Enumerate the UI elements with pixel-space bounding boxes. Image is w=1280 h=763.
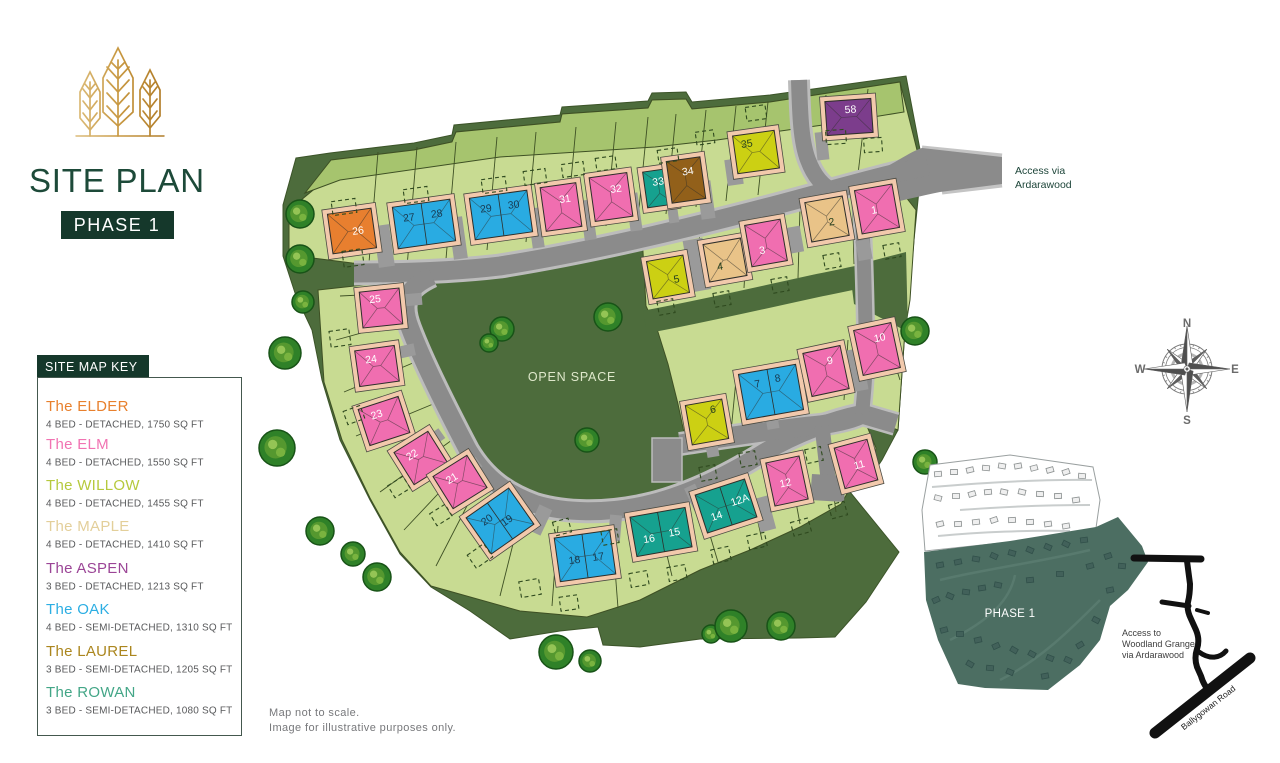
svg-text:58: 58	[844, 103, 857, 116]
svg-text:4 BED - DETACHED, 1550 SQ FT: 4 BED - DETACHED, 1550 SQ FT	[46, 458, 204, 469]
svg-text:3 BED - SEMI-DETACHED, 1080 SQ: 3 BED - SEMI-DETACHED, 1080 SQ FT	[46, 706, 232, 717]
svg-text:Map not to scale.: Map not to scale.	[269, 707, 360, 719]
svg-text:Ardarawood: Ardarawood	[1015, 179, 1072, 191]
svg-text:4 BED - SEMI-DETACHED, 1310 SQ: 4 BED - SEMI-DETACHED, 1310 SQ FT	[46, 623, 232, 634]
svg-text:35: 35	[740, 137, 753, 151]
svg-text:32: 32	[609, 182, 622, 196]
svg-text:The ASPEN: The ASPEN	[46, 560, 129, 577]
svg-text:29: 29	[479, 202, 492, 216]
svg-text:25: 25	[369, 293, 382, 306]
svg-text:The ELM: The ELM	[46, 436, 109, 453]
svg-text:S: S	[1183, 415, 1191, 427]
svg-text:PHASE 1: PHASE 1	[985, 608, 1036, 620]
svg-text:4 BED - DETACHED, 1455 SQ FT: 4 BED - DETACHED, 1455 SQ FT	[46, 499, 204, 510]
svg-text:27: 27	[402, 211, 415, 225]
svg-text:17: 17	[592, 550, 605, 564]
svg-text:The LAUREL: The LAUREL	[46, 643, 137, 660]
svg-text:Access to: Access to	[1122, 628, 1161, 638]
svg-text:30: 30	[507, 198, 520, 212]
svg-text:Woodland Grange: Woodland Grange	[1122, 639, 1195, 649]
svg-text:N: N	[1183, 318, 1191, 330]
svg-text:The OAK: The OAK	[46, 601, 110, 618]
svg-text:SITE PLAN: SITE PLAN	[29, 162, 205, 199]
svg-text:PHASE 1: PHASE 1	[74, 215, 161, 235]
svg-text:33: 33	[652, 175, 665, 189]
svg-text:34: 34	[681, 165, 694, 179]
svg-text:4 BED - DETACHED, 1750 SQ FT: 4 BED - DETACHED, 1750 SQ FT	[46, 420, 204, 431]
svg-text:SITE MAP KEY: SITE MAP KEY	[45, 360, 138, 374]
svg-text:4 BED - DETACHED, 1410 SQ FT: 4 BED - DETACHED, 1410 SQ FT	[46, 540, 204, 551]
svg-text:28: 28	[430, 207, 443, 221]
svg-text:The WILLOW: The WILLOW	[46, 477, 140, 494]
svg-text:E: E	[1231, 364, 1239, 376]
svg-text:The MAPLE: The MAPLE	[46, 518, 130, 535]
svg-text:24: 24	[364, 353, 377, 367]
svg-text:Access via: Access via	[1015, 165, 1065, 177]
svg-text:The ELDER: The ELDER	[46, 398, 129, 415]
svg-text:26: 26	[351, 224, 364, 238]
svg-text:18: 18	[568, 554, 581, 568]
svg-text:3 BED - SEMI-DETACHED, 1205 SQ: 3 BED - SEMI-DETACHED, 1205 SQ FT	[46, 665, 232, 676]
svg-text:16: 16	[642, 532, 656, 546]
svg-text:OPEN SPACE: OPEN SPACE	[528, 370, 616, 384]
svg-text:31: 31	[558, 193, 571, 207]
svg-text:15: 15	[668, 526, 682, 540]
svg-text:via Ardarawood: via Ardarawood	[1122, 650, 1184, 660]
svg-text:Image for illustrative purpose: Image for illustrative purposes only.	[269, 722, 456, 734]
svg-text:W: W	[1135, 364, 1146, 376]
svg-text:3 BED - DETACHED, 1213 SQ FT: 3 BED - DETACHED, 1213 SQ FT	[46, 582, 204, 593]
svg-text:The ROWAN: The ROWAN	[46, 684, 136, 701]
